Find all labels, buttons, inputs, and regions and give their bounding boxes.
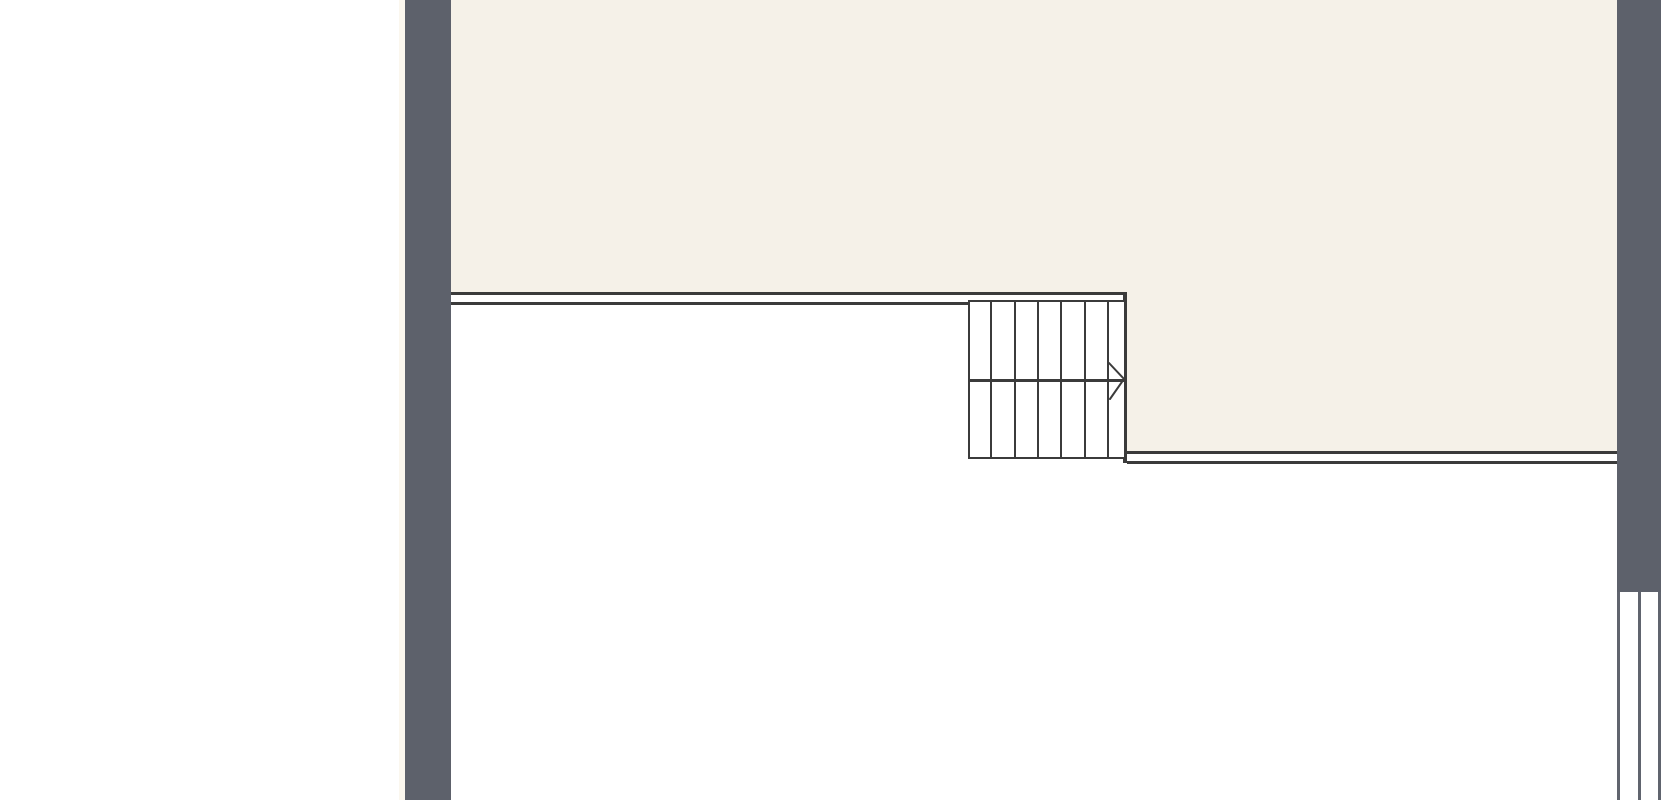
left-wall	[405, 0, 451, 800]
stair-landing-line	[970, 379, 1124, 382]
floor-plan-canvas	[0, 0, 1670, 800]
window-mullion-line	[1658, 592, 1661, 800]
stair-tread-line	[1107, 302, 1109, 457]
interior-wall-lower-outer-line	[1127, 451, 1617, 454]
stair-tread-line	[1014, 302, 1016, 457]
right-wall	[1617, 0, 1661, 592]
staircase	[968, 300, 1126, 459]
stair-tread-line	[1060, 302, 1062, 457]
interior-wall-upper-outer-line	[451, 292, 1127, 295]
window-mullion-line	[1638, 592, 1641, 800]
interior-wall-upper-inner-line	[451, 302, 970, 305]
stair-tread-line	[1037, 302, 1039, 457]
stair-tread-line	[990, 302, 992, 457]
interior-wall-lower-inner-line	[1127, 461, 1617, 464]
window-mullion-line	[1617, 592, 1620, 800]
right-room-floor	[1127, 293, 1617, 451]
stair-tread-line	[1084, 302, 1086, 457]
upper-room-floor	[451, 0, 1617, 293]
